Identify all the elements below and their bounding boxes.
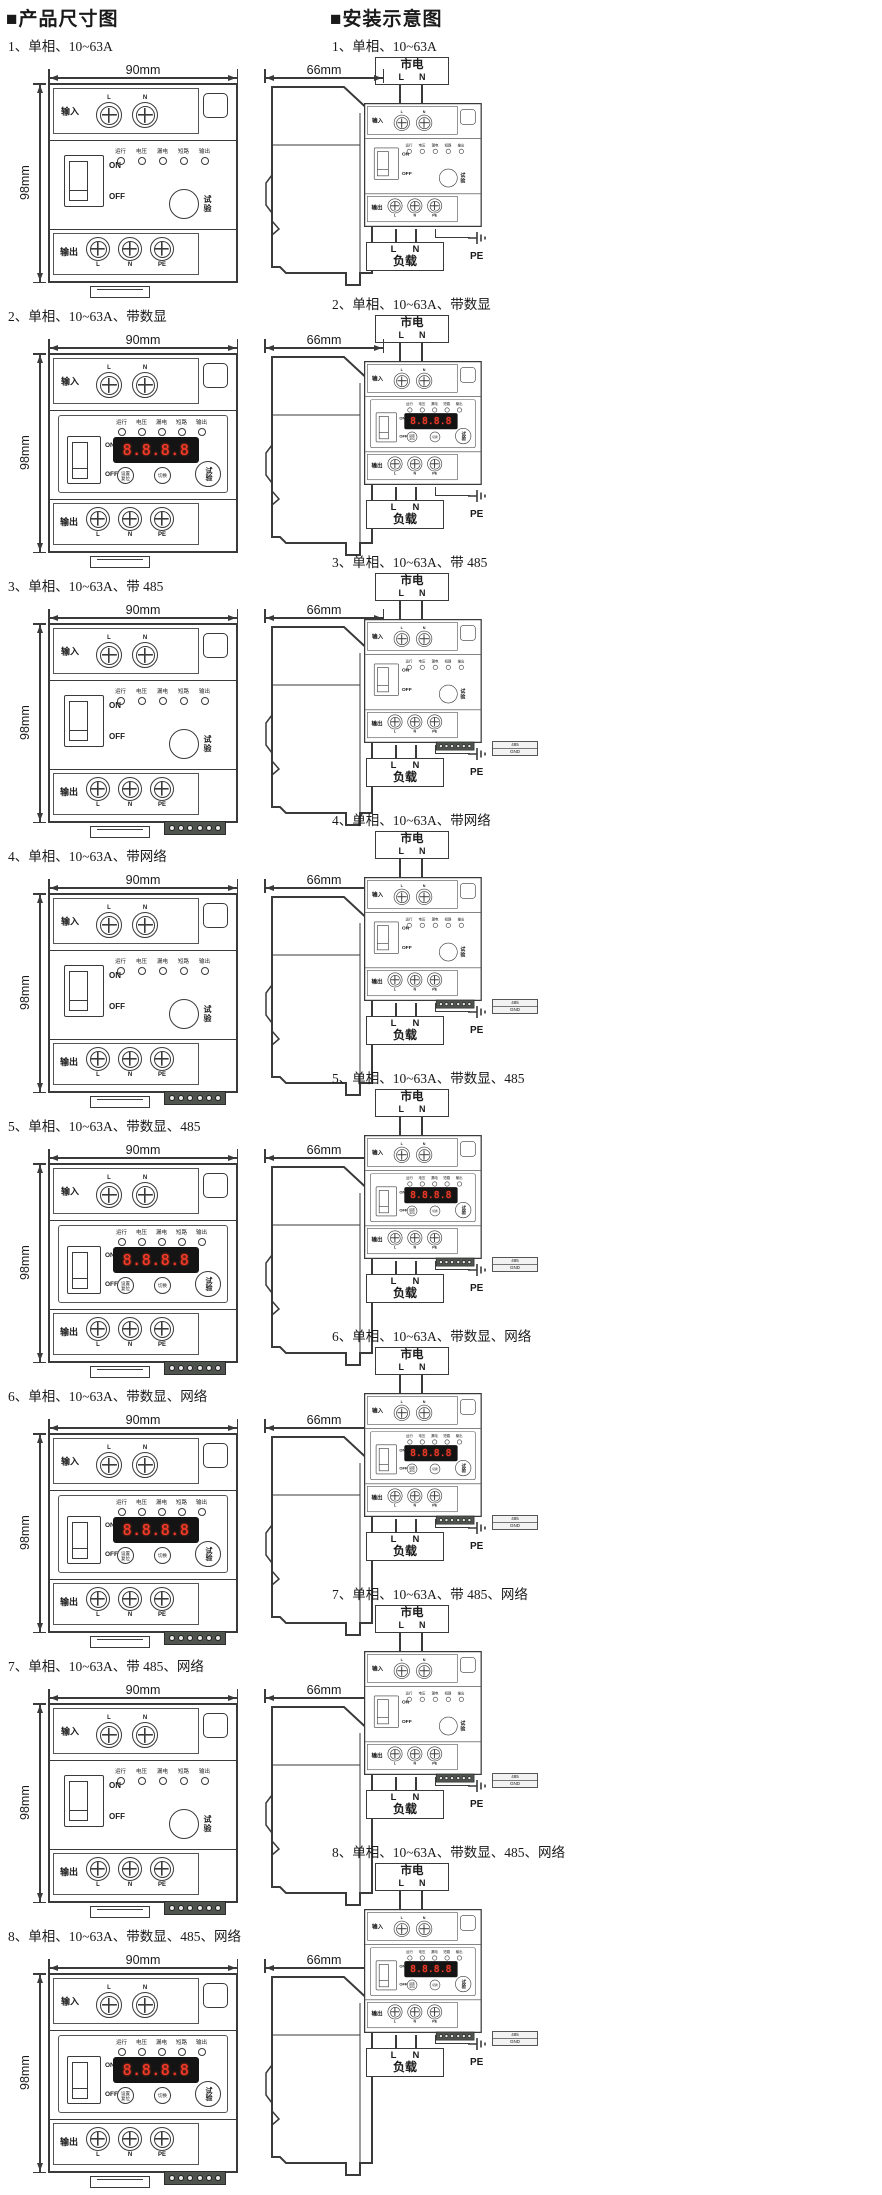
supply-wires bbox=[330, 1633, 675, 1651]
test-button: 试验 bbox=[195, 1541, 221, 1567]
screw-terminal-icon bbox=[394, 889, 410, 905]
screw-terminal-icon bbox=[407, 198, 422, 213]
wire-out-l bbox=[395, 1003, 397, 1016]
pe-label: PE bbox=[470, 509, 483, 520]
pe-label: PE bbox=[470, 1799, 483, 1810]
terminal-label-n: N bbox=[423, 884, 426, 888]
test-button-group: 试验 bbox=[439, 943, 473, 962]
arrow-right-icon bbox=[228, 615, 236, 621]
installation-section: 6、单相、10~63A、带数显、网络 市电 L N 输入 L N bbox=[330, 1325, 675, 1577]
comm-pin-icon bbox=[206, 1905, 212, 1911]
seven-segment-display: 8.8.8.8 bbox=[113, 1517, 199, 1543]
front-view-slot: 输入 L N ON OFF bbox=[48, 1433, 238, 1633]
dim-tick bbox=[33, 282, 46, 284]
input-terminal-n: N bbox=[416, 368, 432, 388]
load-box: L N 负载 bbox=[366, 1790, 444, 1819]
terminal-label-l: L bbox=[394, 2020, 396, 2024]
comm-pin-icon bbox=[215, 1905, 221, 1911]
screw-terminal-icon bbox=[388, 1230, 403, 1245]
led-label: 运行 bbox=[115, 149, 126, 155]
height-dimension bbox=[32, 1703, 48, 1903]
power-switch: ON OFF bbox=[64, 695, 104, 747]
control-zone: ON OFF 运行 电压 漏电 短路 输出 试验 bbox=[50, 681, 236, 769]
terminal-label-pe: PE bbox=[432, 1762, 437, 1766]
width-dim-label: 90mm bbox=[123, 334, 164, 347]
screw-terminal-icon bbox=[407, 2004, 422, 2019]
comm-caption-top: 485 bbox=[493, 2032, 537, 2039]
terminal-label-l: L bbox=[107, 1985, 111, 1991]
terminal-label-l: L bbox=[107, 1445, 111, 1451]
terminal-label-l: L bbox=[96, 802, 100, 808]
output-label: 输出 bbox=[371, 1751, 382, 1759]
device-slot: 输入 L N ON OFF 运行 bbox=[364, 619, 482, 743]
front-view-slot: 输入 L N ON OFF 运行 bbox=[48, 83, 238, 283]
led-label: 漏电 bbox=[156, 2040, 167, 2046]
screw-terminal-icon bbox=[407, 456, 422, 471]
output-terminal-band: 输出 L N PE bbox=[367, 1486, 458, 1512]
input-label: 输入 bbox=[372, 374, 383, 382]
output-terminal-zone: 输出 L N PE bbox=[365, 194, 480, 226]
wire-out-n bbox=[415, 1003, 417, 1016]
output-label: 输出 bbox=[371, 977, 382, 985]
led-label: 输出 bbox=[199, 1769, 210, 1775]
pe-wire bbox=[435, 745, 470, 754]
mains-terminals: L N bbox=[376, 1878, 448, 1888]
led-label: 运行 bbox=[406, 1177, 413, 1181]
led-run: 运行 bbox=[406, 403, 414, 413]
wire-out-l bbox=[395, 229, 397, 242]
output-terminal-l: L bbox=[388, 972, 403, 991]
comm-pin-icon bbox=[197, 1365, 203, 1371]
output-label: 输出 bbox=[60, 1325, 78, 1338]
screw-terminal-icon bbox=[394, 1147, 410, 1163]
device-drawing: 输入 L N ON OFF 运行 bbox=[364, 1651, 484, 1777]
output-terminal-n: N bbox=[407, 198, 422, 217]
front-view-block: 90mm 98mm 输入 L N bbox=[18, 1677, 238, 1918]
input-terminal-l: L bbox=[394, 1916, 410, 1936]
display-panel: ON OFF 运行 电压 漏电 短路 输出 8.8.8.8 设置 复位 bbox=[370, 1947, 475, 1995]
width-dim-label: 90mm bbox=[123, 1414, 164, 1427]
led-label: 漏电 bbox=[431, 403, 438, 407]
led-label: 输出 bbox=[196, 2040, 207, 2046]
led-icon bbox=[138, 428, 146, 436]
input-terminal-band: 输入 L N bbox=[53, 1438, 199, 1484]
output-terminal-zone: 输出 L N PE bbox=[50, 1849, 236, 1901]
led-icon bbox=[419, 1697, 424, 1702]
screw-terminal-icon bbox=[86, 1317, 110, 1341]
output-terminal-n: N bbox=[118, 2127, 142, 2158]
supply-wires bbox=[330, 343, 675, 361]
led-run: 运行 bbox=[406, 1951, 414, 1961]
wire-n bbox=[421, 1375, 423, 1393]
mains-supply-box: 市电 L N bbox=[375, 1863, 449, 1891]
input-terminal-zone: 输入 L N bbox=[50, 1435, 236, 1491]
input-terminal-l: L bbox=[96, 635, 122, 668]
output-terminal-l: L bbox=[388, 1488, 403, 1507]
led-short: 短路 bbox=[175, 420, 188, 436]
screw-terminal-icon bbox=[150, 1317, 174, 1341]
right-sections: 1、单相、10~63A 市电 L N 输入 L N bbox=[330, 35, 675, 2093]
led-output: 输出 bbox=[457, 144, 465, 154]
led-label: 漏电 bbox=[431, 1435, 438, 1439]
switch-mode-label: 切换 bbox=[158, 473, 167, 478]
input-terminal-band: 输入 L N bbox=[53, 1168, 199, 1214]
led-label: 短路 bbox=[176, 1230, 187, 1236]
comm-pin-icon bbox=[197, 2175, 203, 2181]
led-leakage: 漏电 bbox=[155, 420, 168, 436]
switch-mode-label: 切换 bbox=[432, 1209, 438, 1212]
led-label: 短路 bbox=[178, 689, 189, 695]
screw-terminal-icon bbox=[407, 1488, 422, 1503]
led-label: 短路 bbox=[176, 1500, 187, 1506]
comm-pin-icon bbox=[169, 2175, 175, 2181]
led-label: 输出 bbox=[196, 420, 207, 426]
led-icon bbox=[459, 665, 464, 670]
test-label: 试验 bbox=[203, 1277, 213, 1291]
panel-buttons: 设置 复位 切换 bbox=[117, 1547, 171, 1564]
led-voltage: 电压 bbox=[135, 959, 148, 975]
mains-terminals: L N bbox=[376, 72, 448, 82]
test-button bbox=[169, 189, 199, 219]
power-switch: ON OFF bbox=[67, 1246, 101, 1294]
height-dim-label: 98mm bbox=[18, 1973, 32, 2173]
led-label: 电压 bbox=[136, 149, 147, 155]
input-terminal-n: N bbox=[132, 365, 158, 398]
input-terminal-band: 输入 L N bbox=[53, 1978, 199, 2024]
input-terminal-zone: 输入 L N bbox=[365, 620, 480, 655]
arrow-left-icon bbox=[266, 1155, 274, 1161]
wire-out-l bbox=[395, 745, 397, 758]
screw-terminal-icon bbox=[132, 1452, 158, 1478]
device-drawing: 输入 L N ON OFF bbox=[364, 1135, 484, 1261]
led-label: 漏电 bbox=[157, 1769, 168, 1775]
load-label: 负载 bbox=[367, 513, 443, 526]
section-heading: 8、单相、10~63A、带数显、485、网络 bbox=[332, 1841, 675, 1861]
dim-line bbox=[39, 1163, 41, 1363]
arrow-down-icon bbox=[37, 1893, 43, 1901]
screw-terminal-icon bbox=[388, 972, 403, 987]
terminal-label-n: N bbox=[414, 988, 417, 992]
wire-n bbox=[421, 859, 423, 877]
arrow-left-icon bbox=[50, 1695, 58, 1701]
screw-terminal-icon bbox=[132, 372, 158, 398]
input-terminal-band: 输入 L N bbox=[53, 88, 199, 134]
width-dimension: 90mm bbox=[48, 1688, 238, 1703]
led-label: 输出 bbox=[456, 1177, 463, 1181]
width-dimension: 90mm bbox=[48, 338, 238, 353]
mounting-hole bbox=[203, 1443, 228, 1468]
output-label: 输出 bbox=[60, 1055, 78, 1068]
led-label: 短路 bbox=[445, 660, 452, 664]
led-icon bbox=[433, 149, 438, 154]
led-icon bbox=[159, 967, 167, 975]
mains-terminals: L N bbox=[376, 846, 448, 856]
section-heading: 3、单相、10~63A、带 485 bbox=[332, 551, 675, 571]
screw-terminal-icon bbox=[118, 1317, 142, 1341]
led-icon bbox=[459, 149, 464, 154]
section-name: 单相、10~63A、带数显、网络 bbox=[28, 1389, 207, 1404]
earth-ground-icon bbox=[468, 231, 490, 249]
comm-pin-icon bbox=[169, 1635, 175, 1641]
mounting-hole bbox=[460, 625, 476, 641]
led-output: 输出 bbox=[195, 420, 208, 436]
wire-out-l bbox=[395, 1261, 397, 1274]
led-leakage: 漏电 bbox=[430, 1951, 438, 1961]
dim-tick bbox=[237, 69, 239, 83]
arrow-right-icon bbox=[228, 1965, 236, 1971]
screw-terminal-icon bbox=[427, 1488, 442, 1503]
comm-pin-icon bbox=[215, 2175, 221, 2181]
mounting-hole bbox=[203, 1713, 228, 1738]
input-terminal-l: L bbox=[394, 1142, 410, 1162]
section-name: 单相、10~63A、带数显、485、网络 bbox=[352, 1845, 565, 1860]
input-label: 输入 bbox=[372, 1922, 383, 1930]
output-terminal-band: 输出 L N PE bbox=[53, 233, 199, 275]
mounting-hole bbox=[460, 1915, 476, 1931]
output-terminal-zone: 输出 L N PE bbox=[50, 1039, 236, 1091]
led-icon bbox=[198, 1508, 206, 1516]
screw-terminal-icon bbox=[132, 102, 158, 128]
led-short: 短路 bbox=[177, 959, 190, 975]
input-label: 输入 bbox=[372, 1148, 383, 1156]
output-terminal-pe: PE bbox=[427, 1230, 442, 1249]
load-label: 负载 bbox=[367, 1029, 443, 1042]
led-voltage: 电压 bbox=[135, 689, 148, 705]
terminal-label-pe: PE bbox=[432, 472, 437, 476]
terminal-label-l: L bbox=[107, 635, 111, 641]
led-voltage: 电压 bbox=[135, 149, 148, 165]
height-dim-label: 98mm bbox=[18, 83, 32, 283]
control-zone: ON OFF 运行 电压 漏电 短路 输出 8.8.8.8 设置 复位 bbox=[50, 411, 236, 499]
dim-line bbox=[39, 1973, 41, 2173]
front-view-row: 98mm 输入 L N bbox=[18, 893, 238, 1093]
load-box: L N 负载 bbox=[366, 1274, 444, 1303]
display-panel: ON OFF 运行 电压 漏电 短路 输出 8.8.8.8 设置 复位 bbox=[58, 2035, 228, 2113]
test-button-group: 试验 bbox=[439, 685, 473, 704]
led-label: 电压 bbox=[419, 1692, 426, 1696]
output-terminal-zone: 输出 L N PE bbox=[365, 710, 480, 742]
wire-n bbox=[421, 343, 423, 361]
comm-pin-icon bbox=[187, 1095, 193, 1101]
dim-tick bbox=[33, 1092, 46, 1094]
seven-segment-display: 8.8.8.8 bbox=[404, 1961, 457, 1977]
panel-buttons: 设置 复位 切换 bbox=[407, 1980, 440, 1991]
comm-caption-box: 485 GND bbox=[492, 1773, 538, 1788]
front-view-block: 90mm 98mm 输入 L N bbox=[18, 1137, 238, 1378]
output-label: 输出 bbox=[371, 461, 382, 469]
output-terminal-zone: 输出 L N PE bbox=[50, 229, 236, 281]
input-terminal-n: N bbox=[416, 884, 432, 904]
terminal-label-n: N bbox=[128, 262, 132, 268]
led-short: 短路 bbox=[175, 1500, 188, 1516]
load-box: L N 负载 bbox=[366, 242, 444, 271]
arrow-left-icon bbox=[50, 615, 58, 621]
output-terminal-l: L bbox=[388, 1230, 403, 1249]
test-button-group: 试验 bbox=[455, 428, 471, 444]
input-terminal-band: 输入 L N bbox=[367, 1138, 458, 1167]
screw-terminal-icon bbox=[427, 1746, 442, 1761]
led-icon bbox=[407, 408, 412, 413]
mains-label: 市电 bbox=[376, 1607, 448, 1620]
set-reset-button: 设置 复位 bbox=[117, 1547, 134, 1564]
dim-tick bbox=[237, 1959, 239, 1973]
wire-l bbox=[399, 1633, 401, 1651]
screw-terminal-icon bbox=[394, 1405, 410, 1421]
control-zone: ON OFF 运行 电压 漏电 短路 输出 试验 bbox=[50, 1761, 236, 1849]
device-slot: 输入 L N ON OFF 运行 bbox=[364, 877, 482, 1001]
display-panel: ON OFF 运行 电压 漏电 短路 输出 8.8.8.8 设置 复位 bbox=[58, 1225, 228, 1303]
arrow-left-icon bbox=[266, 75, 274, 81]
test-label: 试验 bbox=[203, 2087, 213, 2101]
earth-ground-icon bbox=[468, 2037, 490, 2055]
arrow-down-icon bbox=[37, 2163, 43, 2171]
output-terminal-pe: PE bbox=[150, 1587, 174, 1618]
led-icon bbox=[180, 697, 188, 705]
led-icon bbox=[432, 1182, 437, 1187]
arrow-up-icon bbox=[37, 895, 43, 903]
output-terminal-band: 输出 L N PE bbox=[53, 1043, 199, 1085]
screw-terminal-icon bbox=[394, 1921, 410, 1937]
led-icon bbox=[407, 1182, 412, 1187]
screw-terminal-icon bbox=[118, 1587, 142, 1611]
input-label: 输入 bbox=[372, 1664, 383, 1672]
seven-segment-display: 8.8.8.8 bbox=[404, 413, 457, 429]
test-label: 试验 bbox=[459, 946, 466, 957]
terminal-label-n: N bbox=[143, 1445, 147, 1451]
mains-terminal-n: N bbox=[419, 1620, 426, 1630]
load-wiring-area: L N 负载 PE 485 GND bbox=[330, 2035, 675, 2093]
led-label: 输出 bbox=[456, 1435, 463, 1439]
led-icon bbox=[433, 923, 438, 928]
led-label: 短路 bbox=[445, 144, 452, 148]
power-switch: ON OFF bbox=[374, 922, 399, 954]
mains-terminal-n: N bbox=[419, 1878, 426, 1888]
led-run: 运行 bbox=[114, 149, 127, 165]
led-leakage: 漏电 bbox=[155, 1500, 168, 1516]
input-terminal-zone: 输入 L N bbox=[50, 625, 236, 681]
display-panel: ON OFF 运行 电压 漏电 短路 输出 8.8.8.8 设置 复位 bbox=[58, 1495, 228, 1573]
display-panel: ON OFF 运行 电压 漏电 短路 输出 8.8.8.8 设置 复位 bbox=[370, 1431, 475, 1479]
comm-pin-icon bbox=[187, 2175, 193, 2181]
front-view-block: 90mm 98mm 输入 L N bbox=[18, 327, 238, 568]
panel-buttons: 设置 复位 切换 bbox=[407, 1464, 440, 1475]
screw-terminal-icon bbox=[427, 456, 442, 471]
dim-tick bbox=[237, 1419, 239, 1433]
led-icon bbox=[159, 697, 167, 705]
test-label: 试验 bbox=[202, 1005, 213, 1023]
terminal-label-n: N bbox=[128, 1342, 132, 1348]
led-label: 运行 bbox=[406, 918, 413, 922]
led-label: 电压 bbox=[419, 918, 426, 922]
led-label: 漏电 bbox=[156, 420, 167, 426]
set-reset-button: 设置 复位 bbox=[407, 1206, 418, 1217]
led-label: 运行 bbox=[406, 1692, 413, 1696]
output-terminal-band: 输出 L N PE bbox=[53, 1313, 199, 1355]
screw-terminal-icon bbox=[388, 1746, 403, 1761]
led-icon bbox=[118, 1238, 126, 1246]
screw-terminal-icon bbox=[150, 777, 174, 801]
section-name: 单相、10~63A、带 485、网络 bbox=[352, 1587, 528, 1602]
supply-wires bbox=[330, 1375, 675, 1393]
wire-l bbox=[399, 601, 401, 619]
test-label: 试验 bbox=[459, 688, 466, 699]
mains-terminal-n: N bbox=[419, 72, 426, 82]
arrow-down-icon bbox=[37, 273, 43, 281]
section-name: 单相、10~63A、带数显 bbox=[352, 297, 491, 312]
led-label: 短路 bbox=[178, 1769, 189, 1775]
input-terminal-l: L bbox=[394, 626, 410, 646]
screw-terminal-icon bbox=[388, 456, 403, 471]
mounting-hole bbox=[460, 1399, 476, 1415]
led-output: 输出 bbox=[198, 1769, 211, 1785]
input-label: 输入 bbox=[372, 1406, 383, 1414]
input-terminal-zone: 输入 L N bbox=[50, 1975, 236, 2031]
supply-wires bbox=[330, 859, 675, 877]
output-terminal-n: N bbox=[407, 2004, 422, 2023]
output-terminal-n: N bbox=[407, 456, 422, 475]
terminal-label-n: N bbox=[128, 802, 132, 808]
mains-supply-box: 市电 L N bbox=[375, 1605, 449, 1633]
status-led-row: 运行 电压 漏电 短路 输出 bbox=[114, 149, 211, 165]
comm-pin-icon bbox=[178, 1095, 184, 1101]
load-box: L N 负载 bbox=[366, 2048, 444, 2077]
comm-pin-icon bbox=[169, 1905, 175, 1911]
height-dimension bbox=[32, 893, 48, 1093]
led-leakage: 漏电 bbox=[155, 2040, 168, 2056]
switch-off-label: OFF bbox=[402, 171, 412, 177]
terminal-label-l: L bbox=[401, 1400, 403, 1404]
led-run: 运行 bbox=[114, 1769, 127, 1785]
comm-caption-box: 485 GND bbox=[492, 1257, 538, 1272]
input-label: 输入 bbox=[61, 1185, 79, 1198]
led-label: 电压 bbox=[136, 959, 147, 965]
mains-terminals: L N bbox=[376, 330, 448, 340]
dim-tick bbox=[237, 609, 239, 623]
load-box: L N 负载 bbox=[366, 1016, 444, 1045]
arrow-left-icon bbox=[266, 1695, 274, 1701]
led-label: 输出 bbox=[196, 1500, 207, 1506]
pe-label: PE bbox=[470, 251, 483, 262]
wire-l bbox=[399, 1117, 401, 1135]
control-zone: ON OFF 运行 电压 漏电 短路 输出 8.8.8.8 设置 复位 bbox=[365, 1429, 480, 1484]
status-led-row: 运行 电压 漏电 短路 输出 bbox=[114, 689, 211, 705]
section-number: 2、 bbox=[332, 297, 352, 312]
comm-pin-icon bbox=[215, 825, 221, 831]
output-label: 输出 bbox=[60, 515, 78, 528]
terminal-label-n: N bbox=[414, 2020, 417, 2024]
led-leakage: 漏电 bbox=[430, 403, 438, 413]
led-icon bbox=[432, 408, 437, 413]
led-icon bbox=[117, 697, 125, 705]
terminal-label-pe: PE bbox=[432, 2020, 437, 2024]
arrow-left-icon bbox=[50, 75, 58, 81]
led-voltage: 电压 bbox=[135, 1500, 148, 1516]
led-label: 运行 bbox=[115, 959, 126, 965]
dim-line bbox=[48, 617, 238, 619]
comm-terminal-strip bbox=[164, 1091, 226, 1105]
comm-pin-icon bbox=[169, 1365, 175, 1371]
screw-terminal-icon bbox=[427, 1230, 442, 1245]
led-icon bbox=[406, 665, 411, 670]
switch-off-label: OFF bbox=[109, 732, 125, 741]
status-led-row: 运行 电压 漏电 短路 输出 bbox=[406, 403, 464, 413]
screw-terminal-icon bbox=[416, 373, 432, 389]
led-short: 短路 bbox=[443, 1177, 451, 1187]
led-label: 电压 bbox=[419, 1951, 426, 1955]
comm-pin-icon bbox=[187, 1365, 193, 1371]
led-label: 电压 bbox=[136, 420, 147, 426]
screw-terminal-icon bbox=[132, 1722, 158, 1748]
